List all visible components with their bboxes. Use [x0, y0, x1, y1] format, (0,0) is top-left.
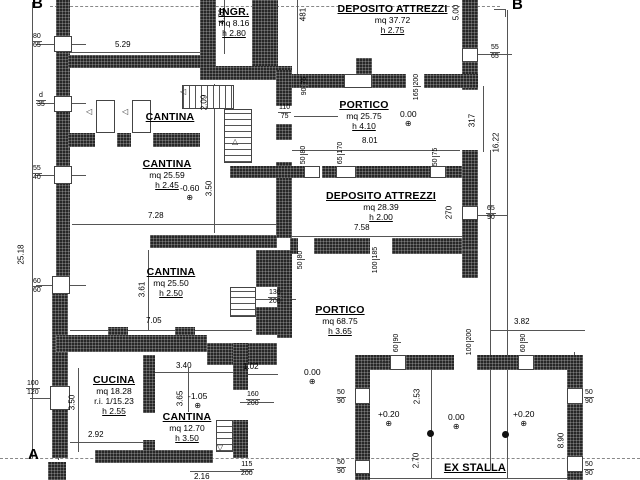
dim-label: 5.29 [115, 40, 131, 49]
level-cross-icon: ⊕ [378, 419, 400, 428]
opening-label: 5090 [336, 389, 346, 406]
wall [462, 220, 478, 250]
room-area: mq 8.16 [206, 18, 262, 28]
opening-label: 9075 [301, 75, 309, 97]
opening-w: 50 [584, 461, 594, 470]
opening-h: 90 [584, 398, 594, 406]
level-value: 0.00 [304, 367, 321, 377]
room-name: CANTINA [136, 266, 206, 278]
opening-label: 8065 [32, 33, 42, 50]
wall [567, 370, 583, 388]
wall [314, 238, 370, 254]
level-value: +0.20 [378, 409, 400, 419]
level-cross-icon: ⊕ [304, 377, 321, 386]
window [355, 460, 370, 474]
opening-label: 100200 [466, 327, 474, 357]
door-swing-icon: ◁ [122, 108, 128, 116]
door-swing-icon: △ [232, 138, 238, 146]
room-area: mq 25.50 [136, 278, 206, 288]
opening-w: d [36, 92, 46, 101]
opening-h: 65 [490, 53, 500, 61]
opening-w: 55 [32, 165, 42, 174]
wall [256, 307, 277, 335]
dim-label: 2.70 [412, 449, 421, 473]
level-marker: -0.60 ⊕ [180, 184, 199, 202]
opening-h: 90 [584, 470, 594, 478]
opening-w: 65 [337, 154, 345, 165]
opening-w: 50 [432, 157, 440, 168]
dim-label: 7.05 [146, 316, 162, 325]
opening-w: 50 [297, 260, 305, 271]
wall [356, 58, 372, 74]
wall [355, 404, 370, 460]
opening-w: 60 [32, 278, 42, 287]
window [462, 206, 478, 220]
window [336, 166, 356, 178]
opening-label: 165200 [413, 72, 421, 102]
opening-w: 90 [301, 86, 309, 97]
wall [276, 124, 292, 140]
wall [462, 0, 478, 48]
section-marker-b-right: B [512, 0, 523, 13]
dim-label: 7.58 [354, 223, 370, 232]
level-cross-icon: ⊕ [448, 422, 465, 431]
opening-h: 65 [32, 42, 42, 50]
window [355, 388, 370, 404]
window [54, 36, 72, 52]
opening-w: 60 [520, 343, 528, 354]
window [567, 456, 583, 472]
dim-label: 270 [445, 203, 454, 223]
opening-h: 90 [336, 398, 346, 406]
opening-h: 40 [32, 174, 42, 182]
dim-label: 5.00 [452, 1, 461, 25]
opening-w: 130 [268, 289, 282, 298]
window [390, 355, 406, 370]
dimension-line [490, 150, 491, 470]
opening-h: 75 [278, 113, 291, 121]
opening-label: 160200 [246, 391, 260, 408]
opening-label: 65170 [337, 140, 345, 166]
room-cantina-2550: CANTINA mq 25.50 h 2.50 [136, 266, 206, 298]
room-area: mq 37.72 [335, 15, 450, 25]
dim-label: 3.40 [176, 361, 192, 370]
dim-label: 8.01 [362, 136, 378, 145]
wall [424, 74, 478, 88]
dim-label: 3.50 [68, 391, 77, 415]
opening-h: 35 [36, 101, 46, 109]
dim-label: 3.82 [514, 317, 530, 326]
section-marker-b-left: B [32, 0, 43, 12]
wall [276, 70, 292, 106]
opening-h: 185 [372, 246, 380, 260]
wall [175, 327, 195, 335]
dim-label: 317 [468, 111, 477, 131]
room-height: h 2.00 [325, 212, 437, 222]
wall-edge-line [370, 478, 567, 479]
wall [68, 133, 95, 147]
dim-label: 2.16 [194, 472, 210, 480]
dim-label: 2.09 [200, 91, 209, 115]
opening-label: 100185 [372, 245, 380, 275]
wall [406, 355, 454, 370]
dimension-line [70, 442, 143, 443]
stair-arrow-icon: ▽ [217, 444, 223, 452]
window [462, 48, 478, 62]
dim-label: 2.53 [413, 385, 422, 409]
wall [567, 404, 583, 456]
dimension-line [483, 86, 484, 152]
opening-label: 5075 [432, 146, 440, 168]
room-height: h 2.50 [136, 288, 206, 298]
stair-arrow-icon: ◁ [180, 88, 186, 96]
room-area: mq 68.75 [306, 316, 374, 326]
room-name: PORTICO [306, 304, 374, 316]
dim-label: 481 [299, 5, 308, 25]
opening-label: 115200 [240, 461, 254, 478]
window [304, 166, 320, 178]
level-cross-icon: ⊕ [400, 119, 417, 128]
window [567, 388, 583, 404]
opening-label: 5080 [300, 144, 308, 166]
door-swing-icon: ◁ [86, 108, 92, 116]
dimension-line [490, 330, 585, 331]
dimension-line [431, 358, 432, 478]
dim-label: 7.28 [148, 211, 164, 220]
dimension-line [70, 330, 252, 331]
level-value: -1.05 [188, 391, 207, 401]
opening-label: 6060 [32, 278, 42, 295]
room-cucina: CUCINA mq 18.28 r.i. 1/15.23 h 2.55 [80, 374, 148, 416]
dim-label: 3.50 [205, 177, 214, 201]
column-dot [427, 430, 434, 437]
level-cross-icon: ⊕ [513, 419, 535, 428]
room-cantina-1270: CANTINA mq 12.70 h 3.50 [152, 411, 222, 443]
opening-label: 100120 [26, 380, 40, 397]
level-marker: +0.20 ⊕ [513, 410, 535, 428]
wall [48, 462, 66, 480]
room-portico-top: PORTICO mq 25.75 h 4.10 [332, 99, 396, 131]
room-area: mq 12.70 [152, 423, 222, 433]
dim-label: 8.90 [557, 429, 566, 453]
wall [233, 420, 248, 458]
wall [56, 184, 70, 276]
opening-label: 6590 [486, 205, 496, 222]
opening-w: 115 [240, 461, 254, 470]
wall [355, 370, 370, 388]
wall [117, 133, 131, 147]
dim-label: 25.18 [17, 241, 26, 269]
dimension-line [507, 10, 508, 478]
opening-h: 200 [246, 400, 260, 408]
window [54, 96, 72, 112]
wall [290, 74, 344, 88]
opening-h: 90 [520, 333, 528, 343]
wall [356, 166, 430, 178]
room-height: h 2.55 [80, 406, 148, 416]
level-marker: +0.20 ⊕ [378, 410, 400, 428]
dim-label: 3.61 [138, 278, 147, 302]
column-dot [502, 431, 509, 438]
opening-h: 170 [337, 141, 345, 155]
room-height: h 2.80 [206, 28, 262, 38]
room-name: INGR. [206, 6, 262, 18]
opening-w: 100 [466, 342, 474, 357]
room-name: CANTINA [152, 411, 222, 423]
opening-label: d35 [36, 92, 46, 109]
dimension-line [70, 52, 204, 53]
opening-label: 5090 [584, 461, 594, 478]
opening-w: 100 [372, 260, 380, 275]
level-value: -0.60 [180, 183, 199, 193]
room-height: h 3.50 [152, 433, 222, 443]
opening-h: 200 [413, 73, 421, 87]
wall [372, 74, 406, 88]
door-swing-icon: △ [380, 356, 386, 364]
opening-w: 80 [32, 33, 42, 42]
wall [567, 472, 583, 480]
room-name: CANTINA [140, 111, 200, 123]
dim-label: 2.92 [88, 430, 104, 439]
opening-w: 50 [584, 389, 594, 398]
opening-w: 110 [278, 104, 291, 113]
wall [322, 166, 336, 178]
room-height: h 3.65 [306, 326, 374, 336]
level-marker: 0.00 ⊕ [448, 413, 465, 431]
room-area: mq 25.75 [332, 111, 396, 121]
wall [52, 410, 68, 458]
level-marker: 0.00 ⊕ [304, 368, 321, 386]
stairs [224, 109, 252, 163]
opening-w: 60 [393, 343, 401, 354]
opening-label: 11075 [278, 104, 291, 121]
room-deposito-attrezzi-mid: DEPOSITO ATTREZZI mq 28.39 h 2.00 [325, 190, 437, 222]
window [52, 276, 70, 294]
wall [56, 335, 207, 352]
dimension-line [152, 372, 238, 373]
opening-w: 160 [246, 391, 260, 400]
dimension-line [78, 368, 79, 452]
wall [392, 238, 462, 254]
room-ex-stalla: EX STALLA [428, 462, 522, 474]
opening-label: 5540 [32, 165, 42, 182]
opening-h: 200 [268, 298, 282, 306]
opening-h: 120 [26, 389, 40, 397]
stairs [230, 287, 256, 317]
dim-label: 4.70 [218, 5, 227, 29]
wall [534, 355, 583, 370]
level-value: +0.20 [513, 409, 535, 419]
opening-h: 75 [301, 76, 309, 86]
wall [477, 355, 518, 370]
opening-h: 80 [297, 250, 305, 260]
opening-w: 50 [300, 155, 308, 166]
level-cross-icon: ⊕ [180, 193, 199, 202]
wall [56, 0, 70, 36]
opening-w: 100 [26, 380, 40, 389]
room-portico-big: PORTICO mq 68.75 h 3.65 [306, 304, 374, 336]
wall [462, 250, 478, 278]
opening-h: 90 [486, 214, 496, 222]
dimension-line [292, 236, 462, 237]
opening-w: 50 [336, 459, 346, 468]
opening-h: 75 [432, 147, 440, 157]
opening-w: 50 [336, 389, 346, 398]
opening-label: 5080 [297, 249, 305, 271]
window [518, 355, 534, 370]
floor-plan: ◁ ◁ ◁ △ ▽ △ B B A INGR. mq 8.16 h 2.80 D… [0, 0, 640, 480]
opening-h: 90 [336, 468, 346, 476]
opening-w: 165 [413, 87, 421, 102]
wall [355, 474, 370, 480]
opening-w: 55 [490, 44, 500, 53]
opening-label: 5565 [490, 44, 500, 61]
section-marker-a: A [28, 446, 39, 463]
room-deposito-attrezzi-top: DEPOSITO ATTREZZI mq 37.72 h 2.75 [335, 3, 450, 35]
room-ingresso: INGR. mq 8.16 h 2.80 [206, 6, 262, 38]
wall [462, 150, 478, 206]
opening-label: 5090 [336, 459, 346, 476]
opening-label: 5090 [584, 389, 594, 406]
section-tick [505, 9, 506, 17]
opening-h: 200 [466, 328, 474, 342]
room-name: EX STALLA [428, 462, 522, 474]
dimension-line [246, 374, 278, 375]
opening-label: 130200 [268, 289, 282, 306]
opening-label: 6090 [393, 332, 401, 354]
level-cross-icon: ⊕ [188, 401, 207, 410]
wall [108, 327, 128, 335]
room-name: CUCINA [80, 374, 148, 386]
wall [95, 450, 213, 463]
room-name: DEPOSITO ATTREZZI [325, 190, 437, 202]
opening-w: 65 [486, 205, 496, 214]
wall [256, 250, 277, 287]
room-ratio: r.i. 1/15.23 [80, 396, 148, 406]
room-name: CANTINA [132, 158, 202, 170]
wall [230, 166, 304, 178]
dim-label: 16.22 [492, 129, 501, 157]
room-cantina-upper: CANTINA [140, 111, 200, 123]
room-height: h 4.10 [332, 121, 396, 131]
level-value: 0.00 [400, 109, 417, 119]
opening-h: 90 [393, 333, 401, 343]
opening-h: 80 [300, 145, 308, 155]
wall [68, 55, 200, 68]
window [344, 74, 372, 88]
room-area: mq 25.59 [132, 170, 202, 180]
wall [446, 166, 462, 178]
room-name: PORTICO [332, 99, 396, 111]
dimension-line [72, 224, 282, 225]
door-leaf [96, 100, 115, 133]
room-name: DEPOSITO ATTREZZI [335, 3, 450, 15]
wall [153, 133, 200, 147]
room-height: h 2.75 [335, 25, 450, 35]
wall [150, 235, 277, 248]
level-value: 0.00 [448, 412, 465, 422]
level-marker: 0.00 ⊕ [400, 110, 417, 128]
dim-label: 1.02 [243, 362, 259, 371]
opening-h: 60 [32, 287, 42, 295]
opening-h: 200 [240, 470, 254, 478]
level-marker: -1.05 ⊕ [188, 392, 207, 410]
dim-label: 3.65 [176, 387, 185, 411]
room-area: mq 28.39 [325, 202, 437, 212]
room-area: mq 18.28 [80, 386, 148, 396]
opening-label: 6090 [520, 332, 528, 354]
window [54, 166, 72, 184]
